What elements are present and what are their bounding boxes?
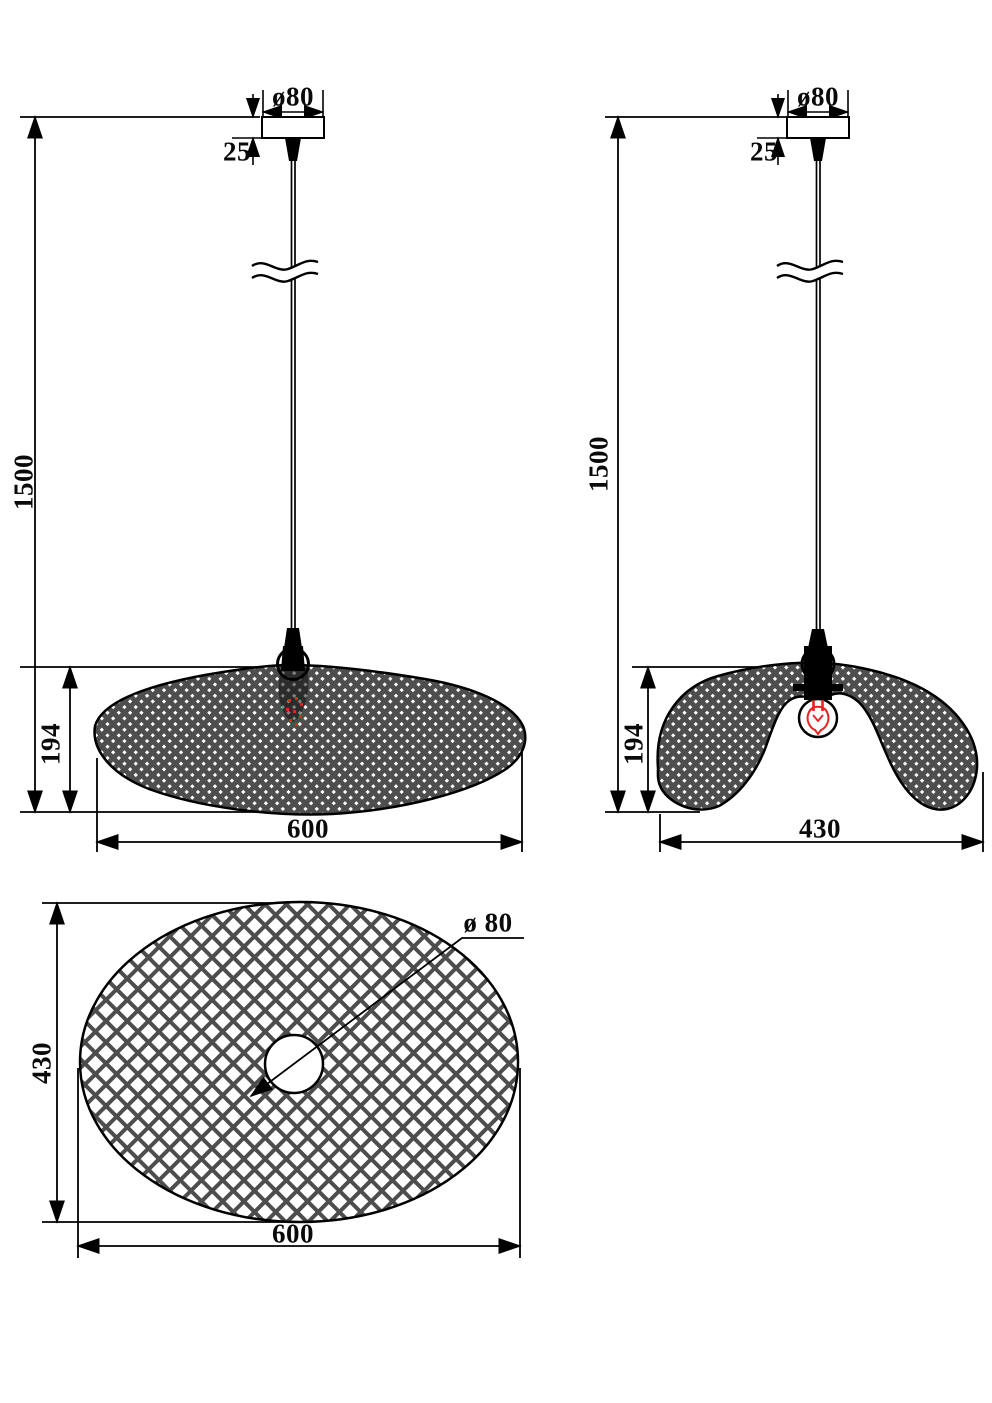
- top-shade-depth-label: 430: [29, 1042, 56, 1084]
- socket-bracket-left: [793, 684, 804, 691]
- top-view: [42, 902, 524, 1258]
- front-shade-width-label: 600: [287, 816, 329, 843]
- front-canopy-diameter-label: ø80: [272, 84, 314, 111]
- light-bulb: [799, 699, 837, 737]
- cable-break-symbol: [777, 261, 843, 282]
- side-shade-height-label: 194: [621, 723, 648, 765]
- front-canopy-assembly: [232, 90, 324, 648]
- side-shade-width-label: 430: [799, 816, 841, 843]
- technical-drawing: ø80 25 1500 194 600 ø80 25 1500 194 430 …: [0, 0, 992, 1403]
- socket-fitting: [284, 628, 302, 648]
- side-canopy-diameter-label: ø80: [797, 84, 839, 111]
- socket-bracket-right: [832, 684, 843, 691]
- ceiling-canopy: [787, 117, 849, 138]
- lamp-socket: [804, 646, 832, 700]
- side-suspension-length-label: 1500: [586, 436, 613, 492]
- front-canopy-height-label: 25: [223, 139, 251, 166]
- top-shade-width-label: 600: [272, 1221, 314, 1248]
- cable-break-symbol: [252, 261, 318, 282]
- front-shade-height-label: 194: [38, 723, 65, 765]
- ceiling-canopy: [262, 117, 324, 138]
- shade-front: [95, 665, 526, 815]
- drawing-linework: [0, 0, 992, 1403]
- cord-grip: [810, 138, 826, 161]
- top-hole-diameter-label: ø 80: [463, 910, 512, 937]
- side-view: [605, 90, 983, 852]
- front-suspension-length-label: 1500: [11, 454, 38, 510]
- cord-grip: [285, 138, 301, 161]
- socket-fitting: [808, 629, 828, 648]
- lamp-socket: [281, 646, 305, 671]
- front-view: [20, 90, 525, 852]
- side-canopy-assembly: [757, 90, 849, 645]
- side-canopy-height-label: 25: [750, 139, 778, 166]
